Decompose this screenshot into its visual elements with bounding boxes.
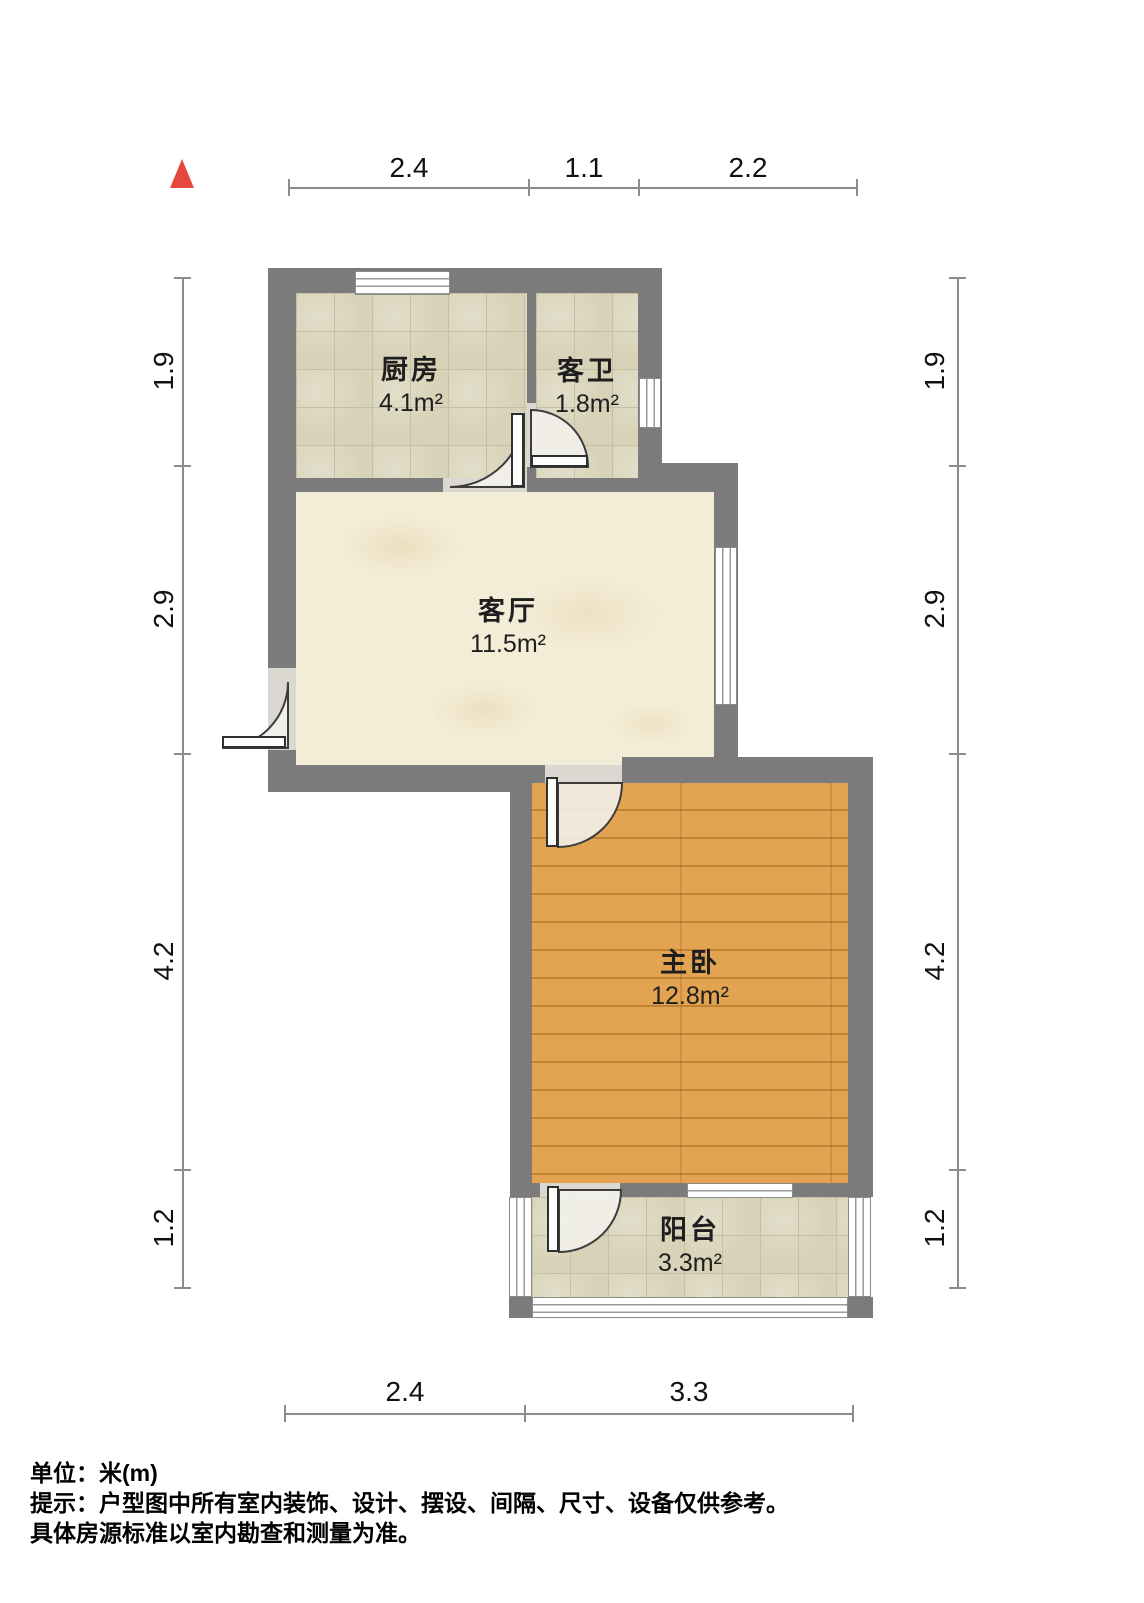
dim-right-2: 2.9 — [919, 579, 947, 639]
dim-right-4: 1.2 — [919, 1198, 947, 1258]
wall-bathroom-bottom — [536, 478, 640, 492]
balcony-window-left — [509, 1197, 532, 1297]
dim-tick — [174, 465, 191, 467]
dim-left-3: 4.2 — [148, 931, 176, 991]
kitchen-name: 厨房 — [379, 353, 443, 387]
dim-tick — [949, 1169, 966, 1171]
floorplan-canvas: 厨房 4.1m² 客卫 1.8m² 客厅 11.5m² 主卧 12.8m² 阳台… — [0, 0, 1144, 1603]
dim-top-1: 2.4 — [379, 152, 439, 184]
wall-bedroom-top-b — [622, 757, 873, 783]
wall-balcony-divider-a — [532, 1183, 540, 1197]
balcony-door-leaf — [547, 1186, 559, 1252]
dim-tick — [949, 277, 966, 279]
dim-left-4: 1.2 — [148, 1198, 176, 1258]
dim-tick — [949, 465, 966, 467]
bedroom-door-leaf — [546, 777, 558, 847]
dim-left-2: 2.9 — [148, 579, 176, 639]
wall-left-upper — [268, 268, 296, 668]
dim-line-left — [182, 278, 184, 1289]
living-window — [715, 547, 737, 705]
dim-bottom-1: 2.4 — [375, 1376, 435, 1408]
dim-tick — [174, 1169, 191, 1171]
dim-tick — [852, 1405, 854, 1422]
dim-tick — [284, 1405, 286, 1422]
dim-top-3: 2.2 — [718, 152, 778, 184]
dim-tick — [524, 1405, 526, 1422]
room-label-bathroom: 客卫 1.8m² — [555, 354, 619, 420]
bathroom-window — [639, 378, 661, 428]
wall-kitchen-bath-divider — [527, 293, 536, 403]
bedroom-door-swing — [554, 779, 626, 851]
dim-bottom-2: 3.3 — [659, 1376, 719, 1408]
wall-bedroom-top-a — [532, 765, 545, 783]
room-label-living: 客厅 11.5m² — [470, 594, 546, 660]
kitchen-window — [355, 271, 450, 295]
disclaimer-line1: 提示：户型图中所有室内装饰、设计、摆设、间隔、尺寸、设备仅供参考。 — [30, 1488, 1110, 1518]
balcony-window-bottom — [532, 1297, 848, 1318]
bedroom-area: 12.8m² — [651, 980, 729, 1012]
balcony-window-right — [848, 1197, 871, 1297]
wall-balcony-divider-c — [793, 1183, 848, 1197]
disclaimer-line2: 具体房源标准以室内勘查和测量为准。 — [30, 1518, 1110, 1548]
balcony-area: 3.3m² — [658, 1247, 722, 1279]
bathroom-door-leaf — [531, 455, 588, 467]
wall-bedroom-left — [510, 765, 532, 1197]
bathroom-area: 1.8m² — [555, 388, 619, 420]
unit-note: 单位：米(m) — [30, 1458, 1110, 1488]
dim-line-top — [289, 187, 858, 189]
dim-line-bottom — [285, 1413, 854, 1415]
room-label-bedroom: 主卧 12.8m² — [651, 946, 729, 1012]
wall-balcony-corner-right — [848, 1297, 873, 1318]
dim-tick — [528, 179, 530, 196]
balcony-name: 阳台 — [658, 1213, 722, 1247]
bedroom-balcony-window — [687, 1183, 793, 1198]
wall-balcony-divider-b — [620, 1183, 687, 1197]
dim-tick — [949, 1287, 966, 1289]
wall-bedroom-right — [848, 757, 873, 1197]
wall-bathroom-right — [638, 268, 662, 468]
dim-tick — [949, 753, 966, 755]
dim-tick — [638, 179, 640, 196]
dim-right-3: 4.2 — [919, 931, 947, 991]
living-area: 11.5m² — [470, 628, 546, 660]
wall-notch-block — [638, 463, 738, 492]
dim-left-1: 1.9 — [148, 341, 176, 401]
dim-tick — [174, 277, 191, 279]
dim-top-2: 1.1 — [554, 152, 614, 184]
room-label-kitchen: 厨房 4.1m² — [379, 353, 443, 419]
entry-door-leaf — [222, 736, 286, 748]
dim-tick — [174, 753, 191, 755]
wall-living-bottom — [268, 765, 532, 792]
bedroom-name: 主卧 — [651, 946, 729, 980]
living-name: 客厅 — [470, 594, 546, 628]
north-arrow-icon — [170, 159, 194, 188]
wall-balcony-corner-left — [509, 1297, 532, 1318]
wall-kitchen-bottom — [296, 478, 443, 492]
kitchen-area: 4.1m² — [379, 387, 443, 419]
dim-right-1: 1.9 — [919, 341, 947, 401]
wall-top — [268, 268, 662, 293]
dim-line-right — [957, 278, 959, 1289]
balcony-door-swing — [555, 1186, 625, 1256]
bathroom-name: 客卫 — [555, 354, 619, 388]
dim-tick — [174, 1287, 191, 1289]
footer-notes: 单位：米(m) 提示：户型图中所有室内装饰、设计、摆设、间隔、尺寸、设备仅供参考… — [30, 1458, 1110, 1548]
dim-tick — [288, 179, 290, 196]
dim-tick — [856, 179, 858, 196]
room-label-balcony: 阳台 3.3m² — [658, 1213, 722, 1279]
kitchen-door-leaf — [511, 413, 524, 487]
